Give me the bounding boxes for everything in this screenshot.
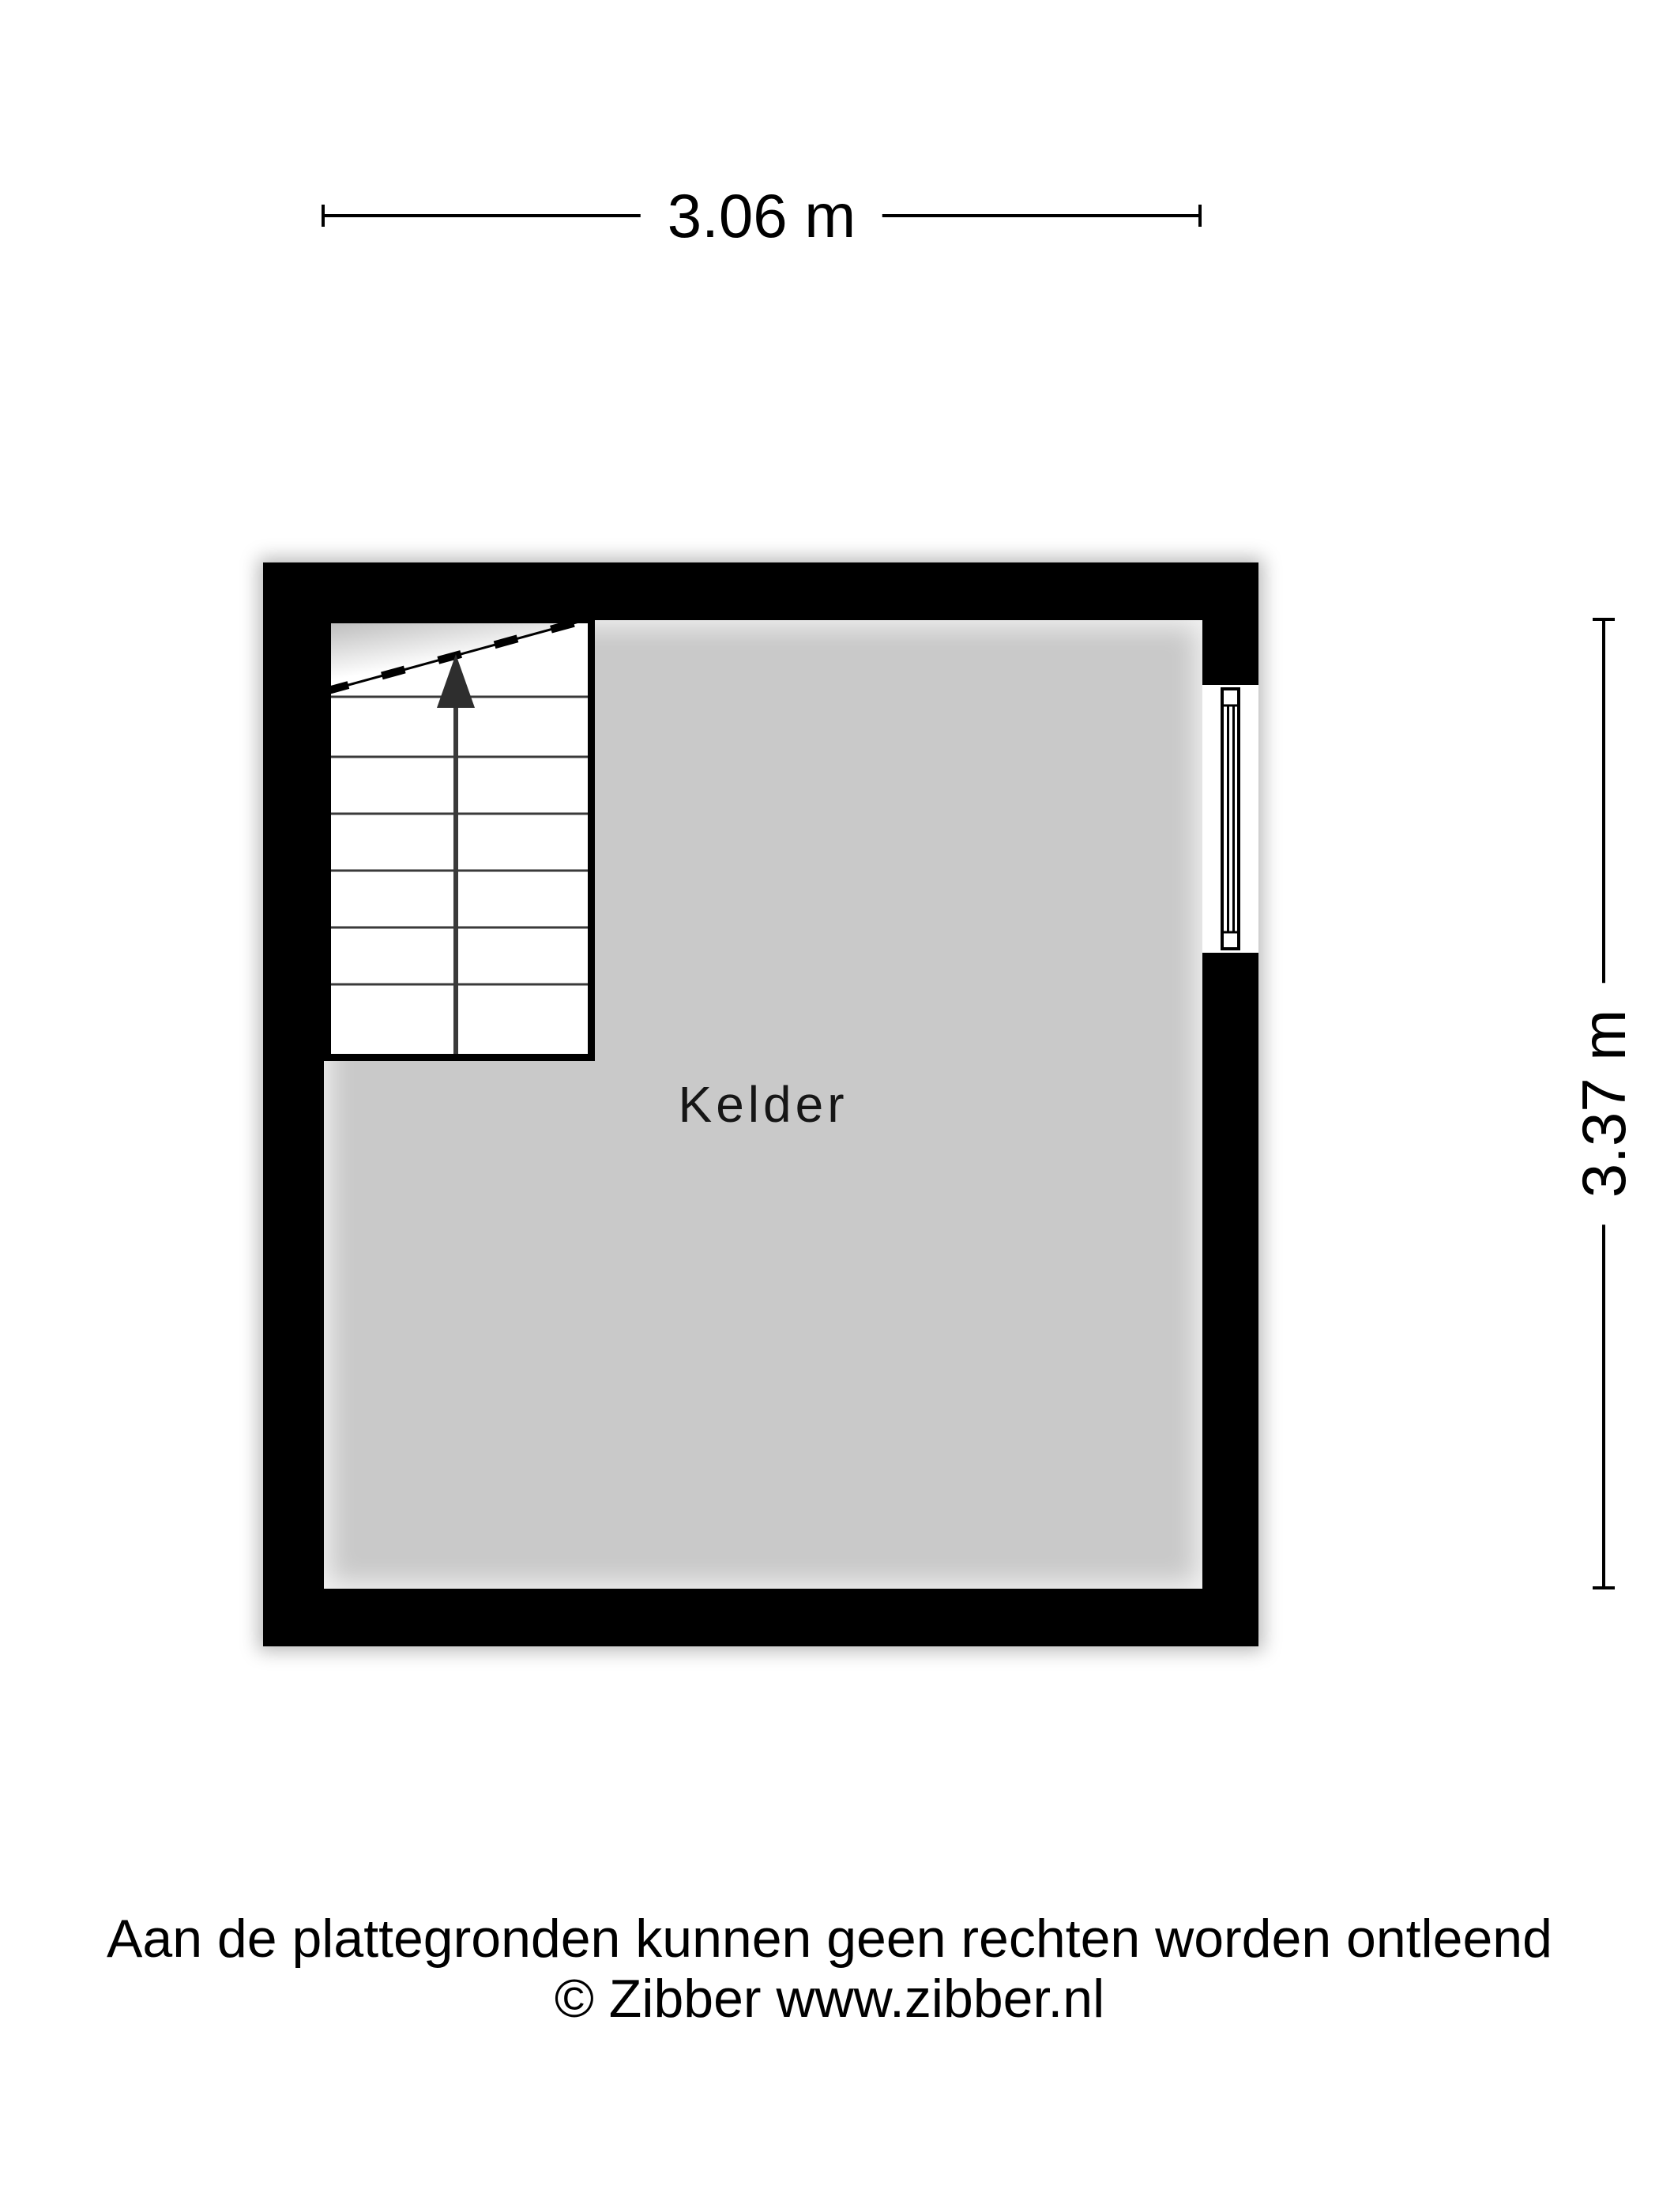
floorplan-canvas: 3.06 m 3.37 m Kelder xyxy=(0,0,1659,2212)
stairs-up-icon xyxy=(324,616,595,1061)
footer: Aan de plattegronden kunnen geen rechten… xyxy=(0,1909,1659,2029)
dimension-tick-top xyxy=(1593,618,1615,621)
dimension-height: 3.37 m xyxy=(1593,618,1615,1589)
footer-copyright: © Zibber www.zibber.nl xyxy=(0,1969,1659,2029)
dimension-tick-right xyxy=(1198,205,1202,227)
dimension-width: 3.06 m xyxy=(322,205,1202,227)
dimension-width-label: 3.06 m xyxy=(641,185,882,246)
plan-walls: Kelder xyxy=(263,562,1258,1646)
room-label: Kelder xyxy=(679,1075,848,1134)
dimension-tick-left xyxy=(322,205,325,227)
dimension-height-label: 3.37 m xyxy=(1573,983,1635,1224)
dimension-tick-bottom xyxy=(1593,1586,1615,1589)
window-icon xyxy=(1202,685,1258,953)
footer-disclaimer: Aan de plattegronden kunnen geen rechten… xyxy=(0,1909,1659,1969)
